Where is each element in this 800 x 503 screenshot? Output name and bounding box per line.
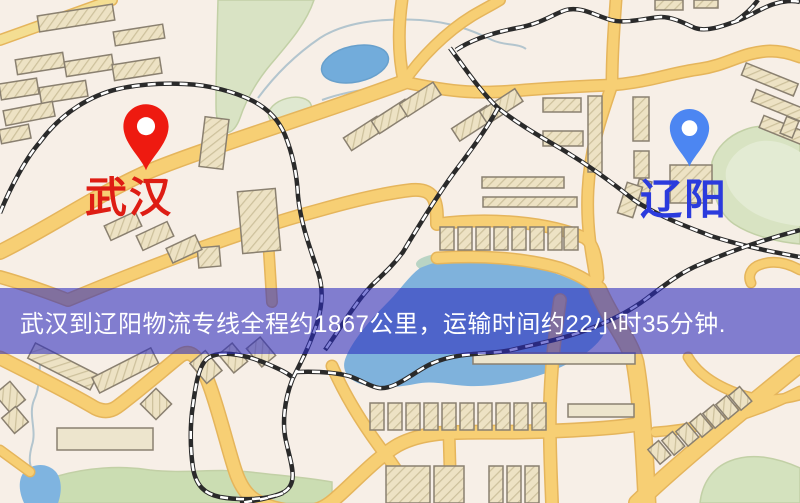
origin-label: 武汉	[85, 177, 173, 219]
destination-label: 辽阳	[640, 179, 728, 221]
destination-pin-icon	[667, 108, 712, 168]
map-canvas	[0, 0, 800, 503]
route-info-text: 武汉到辽阳物流专线全程约1867公里，运输时间约22小时35分钟.	[0, 304, 726, 339]
route-info-banner: 武汉到辽阳物流专线全程约1867公里，运输时间约22小时35分钟.	[0, 288, 800, 354]
origin-pin-icon	[122, 103, 170, 172]
route-map: 武汉 辽阳 武汉到辽阳物流专线全程约1867公里，运输时间约22小时35分钟.	[0, 0, 800, 503]
